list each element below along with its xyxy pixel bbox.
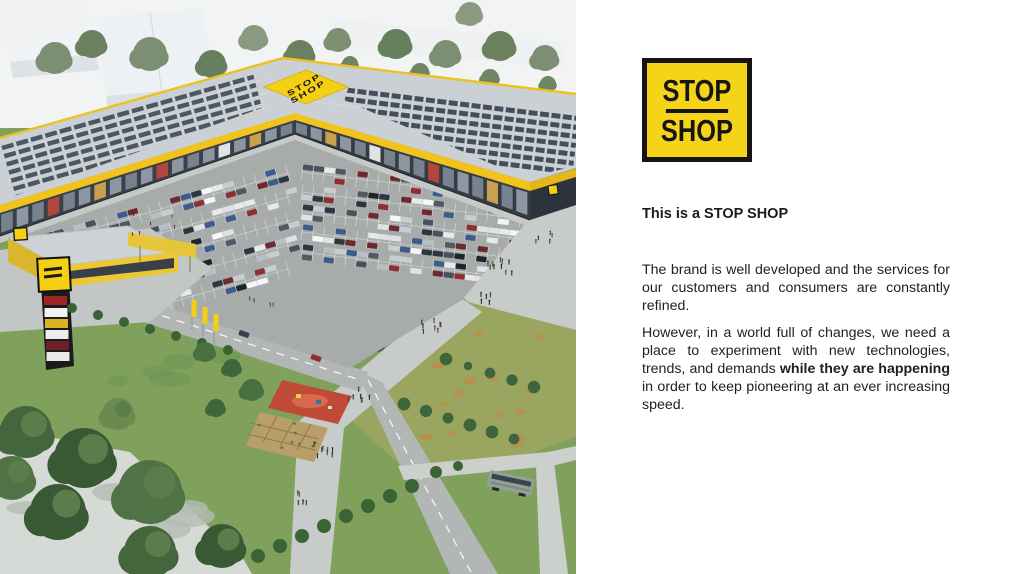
paragraph-2-after: in order to keep pioneering at an ever i… xyxy=(642,379,950,413)
stop-shop-logo-inner: STOP SHOP xyxy=(661,75,733,146)
slide-heading: This is a STOP SHOP xyxy=(642,206,788,222)
retail-park-aerial-image: STOP SHOP xyxy=(0,0,576,574)
slide-body: The brand is well developed and the serv… xyxy=(642,261,950,414)
logo-word-top: STOP xyxy=(663,75,732,106)
slide-text-panel: STOP SHOP This is a STOP SHOP The brand … xyxy=(576,0,1024,574)
body-paragraph-1: The brand is well developed and the serv… xyxy=(642,261,950,315)
retail-park-aerial-rendering: STOP SHOP xyxy=(0,0,576,574)
stop-shop-logo: STOP SHOP xyxy=(642,58,752,162)
presentation-slide: STOP SHOP STOP SHOP This is a STOP SHOP … xyxy=(0,0,1024,574)
paragraph-2-bold: while they are happening xyxy=(780,361,950,377)
body-paragraph-2: However, in a world full of changes, we … xyxy=(642,324,950,414)
logo-word-bottom: SHOP xyxy=(661,115,733,146)
